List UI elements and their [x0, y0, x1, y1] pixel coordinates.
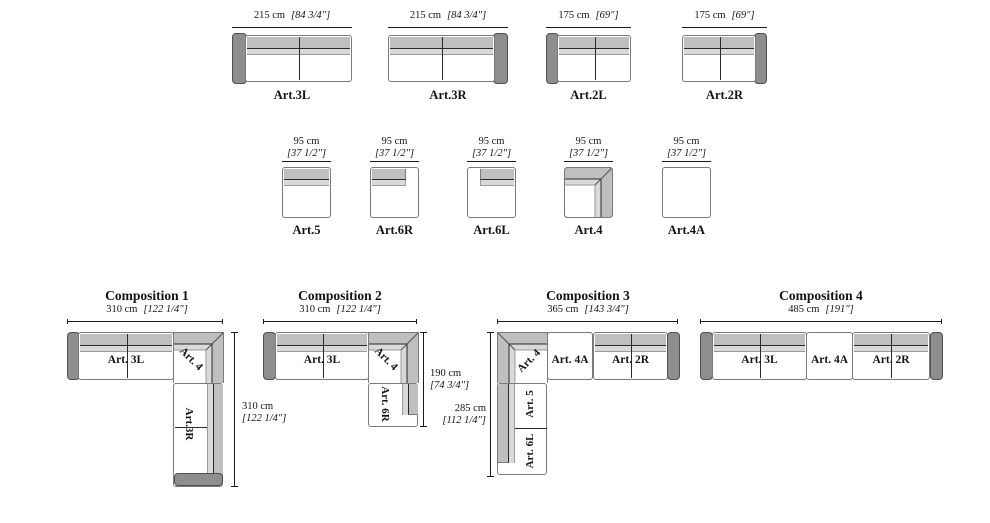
seat-divider [720, 37, 721, 80]
seat-divider [442, 37, 443, 80]
armrest-right [667, 332, 680, 380]
dimension-cm: 95 cm [479, 136, 505, 147]
vertical-seat-label: Art.3R [179, 394, 199, 454]
module-body [282, 167, 331, 218]
spec-sheet-page: { "row1": { "items": [ {"label": "Art.3L… [0, 0, 990, 523]
composition-3: 285 cm [112 1/4"] Composition 3 365 cm[1… [440, 288, 690, 503]
dimension-line [662, 161, 711, 162]
vertical-seat-label: Art. 6L [520, 421, 540, 481]
composition-title: Composition 1 [62, 288, 232, 304]
dimension-inch: [122 1/4"] [143, 304, 187, 315]
module-label: Art.3L [232, 88, 352, 103]
module-art-2r: 175 cm[69"] Art.2R [682, 10, 767, 105]
backrest [559, 37, 629, 49]
dimension-line [682, 27, 767, 28]
dimension-cm: 215 cm [410, 10, 441, 21]
dimension-label: 95 cm [37 1/2"] [447, 136, 536, 160]
dimension-cm: 310 cm [106, 304, 137, 315]
dimension-label: 95 cm [37 1/2"] [544, 136, 633, 160]
dimension-line [388, 27, 508, 28]
width-dimension-line [67, 321, 223, 322]
module-label: Art.6R [370, 223, 419, 238]
dimension-cm: 95 cm [674, 136, 700, 147]
module-body [370, 167, 419, 218]
module-art-2l: 175 cm[69"] Art.2L [546, 10, 631, 105]
dimension-inch: [69"] [596, 10, 619, 21]
dimension-inch: [37 1/2"] [472, 148, 511, 159]
dimension-cm: 175 cm [694, 10, 725, 21]
dimension-inch: [122 1/4"] [336, 304, 380, 315]
backrest-cushion [80, 346, 172, 352]
seat-label: Art. 4A [547, 354, 593, 366]
armrest-bottom [174, 473, 223, 486]
backrest [213, 384, 223, 475]
module-art-6r: 95 cm [37 1/2"] Art.6R [370, 136, 419, 241]
dimension-cm: 215 cm [254, 10, 285, 21]
dimension-cm: 95 cm [382, 136, 408, 147]
dimension-label: 175 cm[69"] [536, 10, 641, 21]
seat-label: Art. 4A [806, 354, 853, 366]
armrest-right [930, 332, 943, 380]
composition-title: Composition 3 [498, 288, 678, 304]
dimension-line [564, 161, 613, 162]
composition-title: Composition 4 [741, 288, 901, 304]
module-art-6l: 95 cm [37 1/2"] Art.6L [467, 136, 516, 241]
sofa-body [388, 35, 495, 82]
backrest [284, 169, 329, 180]
seat-label: Art. 3L [78, 354, 174, 366]
dimension-inch: [37 1/2"] [375, 148, 414, 159]
composition-1: Composition 1 310 cm[122 1/4"] Art. 3L A… [62, 288, 292, 503]
composition-width-dimension: 485 cm[191"] [741, 304, 901, 315]
backrest-partial [480, 169, 514, 180]
vertical-seat-label: Art. 6R [375, 374, 395, 434]
module-label: Art.4A [662, 223, 711, 238]
sofa-body [682, 35, 756, 82]
height-dimension-line [490, 332, 491, 477]
dimension-line [282, 161, 331, 162]
dimension-inch: [191"] [825, 304, 853, 315]
composition-title: Composition 2 [262, 288, 418, 304]
height-dimension-line [234, 332, 235, 487]
dimension-inch: [112 1/4"] [442, 415, 486, 426]
backrest-cushion [284, 180, 329, 186]
seat-label: Art. 3L [712, 354, 807, 366]
module-art-4: 95 cm [37 1/2"] Art.4 [564, 136, 613, 241]
module-art-5: 95 cm [37 1/2"] Art.5 [282, 136, 331, 241]
backrest-cushion [559, 49, 629, 55]
dimension-inch: [69"] [732, 10, 755, 21]
backrest-cushion [372, 180, 406, 186]
dimension-inch: [37 1/2"] [667, 148, 706, 159]
module-body [662, 167, 711, 218]
dimension-line [232, 27, 352, 28]
module-body [467, 167, 516, 218]
composition-height-dimension: 285 cm [112 1/4"] [440, 403, 486, 427]
dimension-label: 175 cm[69"] [672, 10, 777, 21]
module-label: Art.3R [388, 88, 508, 103]
seat-label: Art. 2R [852, 354, 930, 366]
backrest-cushion [509, 384, 515, 463]
composition-width-dimension: 365 cm[143 3/4"] [498, 304, 678, 315]
width-dimension-line [497, 321, 678, 322]
seat-divider [299, 37, 300, 80]
backrest [408, 384, 418, 415]
seat-label: Art. 3L [275, 354, 369, 366]
backrest-cushion [684, 49, 754, 55]
corner-module-graphic [564, 167, 613, 218]
backrest-cushion [480, 180, 514, 186]
dimension-inch: [37 1/2"] [569, 148, 608, 159]
backrest [80, 334, 172, 346]
dimension-inch: [84 3/4"] [291, 10, 330, 21]
seat-label: Art. 2R [593, 354, 668, 366]
composition-4: Composition 4 485 cm[191"] Art. 3L Art. … [695, 288, 955, 398]
dimension-inch: [84 3/4"] [447, 10, 486, 21]
sofa-body [245, 35, 352, 82]
dimension-cm: 485 cm [788, 304, 819, 315]
module-label: Art.6L [467, 223, 516, 238]
dimension-cm: 365 cm [547, 304, 578, 315]
dimension-line [370, 161, 419, 162]
width-dimension-line [263, 321, 417, 322]
sofa-body [557, 35, 631, 82]
backrest [277, 334, 367, 346]
backrest [684, 37, 754, 49]
dimension-line [546, 27, 631, 28]
backrest-partial [372, 169, 406, 180]
module-art-3r: 215 cm[84 3/4"] Art.3R [388, 10, 508, 105]
module-art-3l: 215 cm[84 3/4"] Art.3L [232, 10, 352, 105]
dimension-label: 215 cm[84 3/4"] [388, 10, 508, 21]
dimension-inch: [37 1/2"] [287, 148, 326, 159]
backrest [498, 384, 509, 463]
module-label: Art.2R [682, 88, 767, 103]
dimension-cm: 175 cm [558, 10, 589, 21]
composition-width-dimension: 310 cm[122 1/4"] [262, 304, 418, 315]
dimension-line [467, 161, 516, 162]
backrest-cushion [277, 346, 367, 352]
module-label: Art.4 [564, 223, 613, 238]
dimension-cm: 310 cm [299, 304, 330, 315]
composition-width-dimension: 310 cm[122 1/4"] [62, 304, 232, 315]
dimension-label: 95 cm [37 1/2"] [642, 136, 731, 160]
dimension-inch: [143 3/4"] [584, 304, 628, 315]
seat-divider [595, 37, 596, 80]
armrest-right [493, 33, 508, 84]
module-label: Art.5 [282, 223, 331, 238]
module-art-4a: 95 cm [37 1/2"] Art.4A [662, 136, 711, 241]
height-dimension-line [423, 332, 424, 427]
width-dimension-line [700, 321, 942, 322]
dimension-label: 215 cm[84 3/4"] [232, 10, 352, 21]
dimension-cm: 95 cm [576, 136, 602, 147]
dimension-cm: 285 cm [455, 403, 486, 414]
dimension-cm: 95 cm [294, 136, 320, 147]
dimension-label: 95 cm [37 1/2"] [350, 136, 439, 160]
dimension-label: 95 cm [37 1/2"] [262, 136, 351, 160]
module-label: Art.2L [546, 88, 631, 103]
